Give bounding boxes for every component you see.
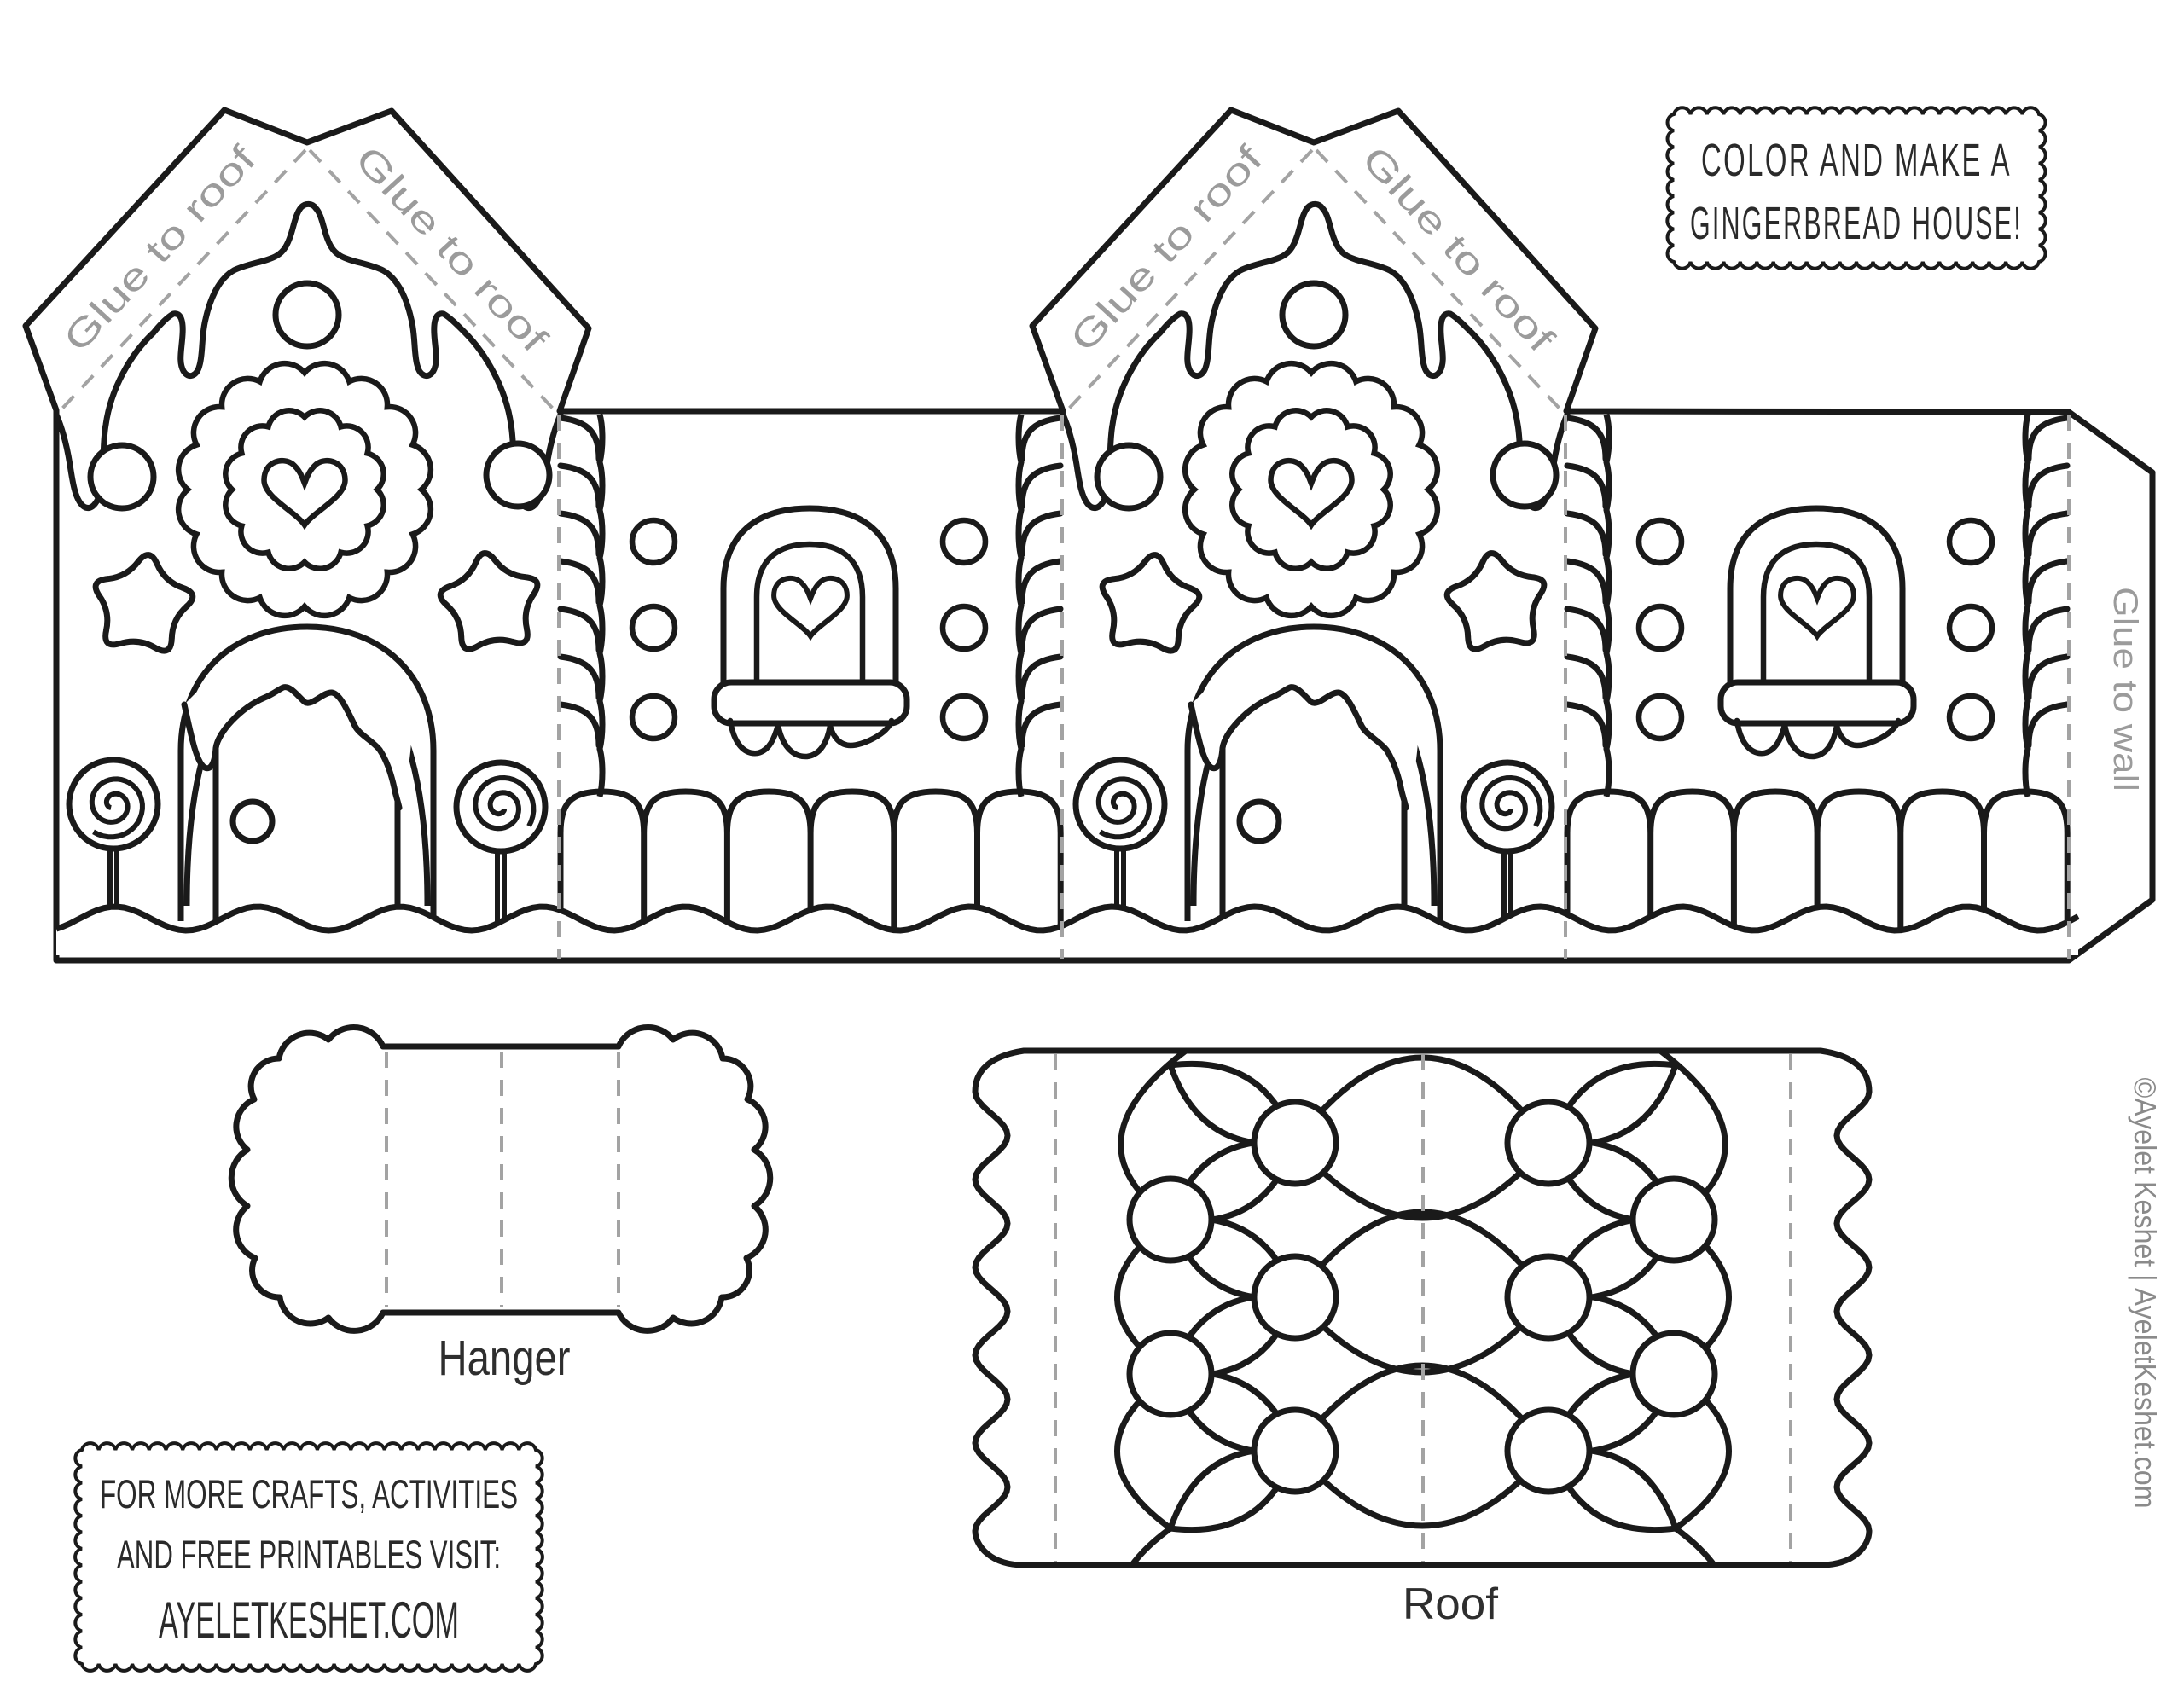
svg-text:AYELETKESHET.COM: AYELETKESHET.COM	[159, 1591, 459, 1649]
svg-text:AND FREE PRINTABLES VISIT:: AND FREE PRINTABLES VISIT:	[117, 1532, 501, 1577]
svg-text:Glue to wall: Glue to wall	[2106, 587, 2144, 791]
svg-text:COLOR AND MAKE A: COLOR AND MAKE A	[1701, 135, 2012, 186]
svg-text:Roof: Roof	[1403, 1580, 1499, 1629]
svg-text:Hanger: Hanger	[439, 1330, 571, 1386]
svg-text:©Ayelet Keshet | AyeletKeshet.: ©Ayelet Keshet | AyeletKeshet.com	[2128, 1078, 2163, 1509]
svg-text:GINGERBREAD HOUSE!: GINGERBREAD HOUSE!	[1690, 198, 2023, 249]
svg-text:FOR MORE CRAFTS, ACTIVITIES: FOR MORE CRAFTS, ACTIVITIES	[100, 1471, 518, 1516]
